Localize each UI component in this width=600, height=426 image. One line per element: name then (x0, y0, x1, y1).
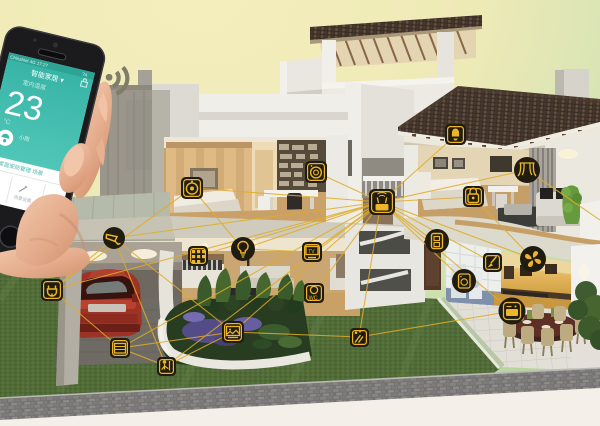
svg-text:WC: WC (309, 296, 318, 302)
svg-text:TV: TV (308, 249, 315, 255)
